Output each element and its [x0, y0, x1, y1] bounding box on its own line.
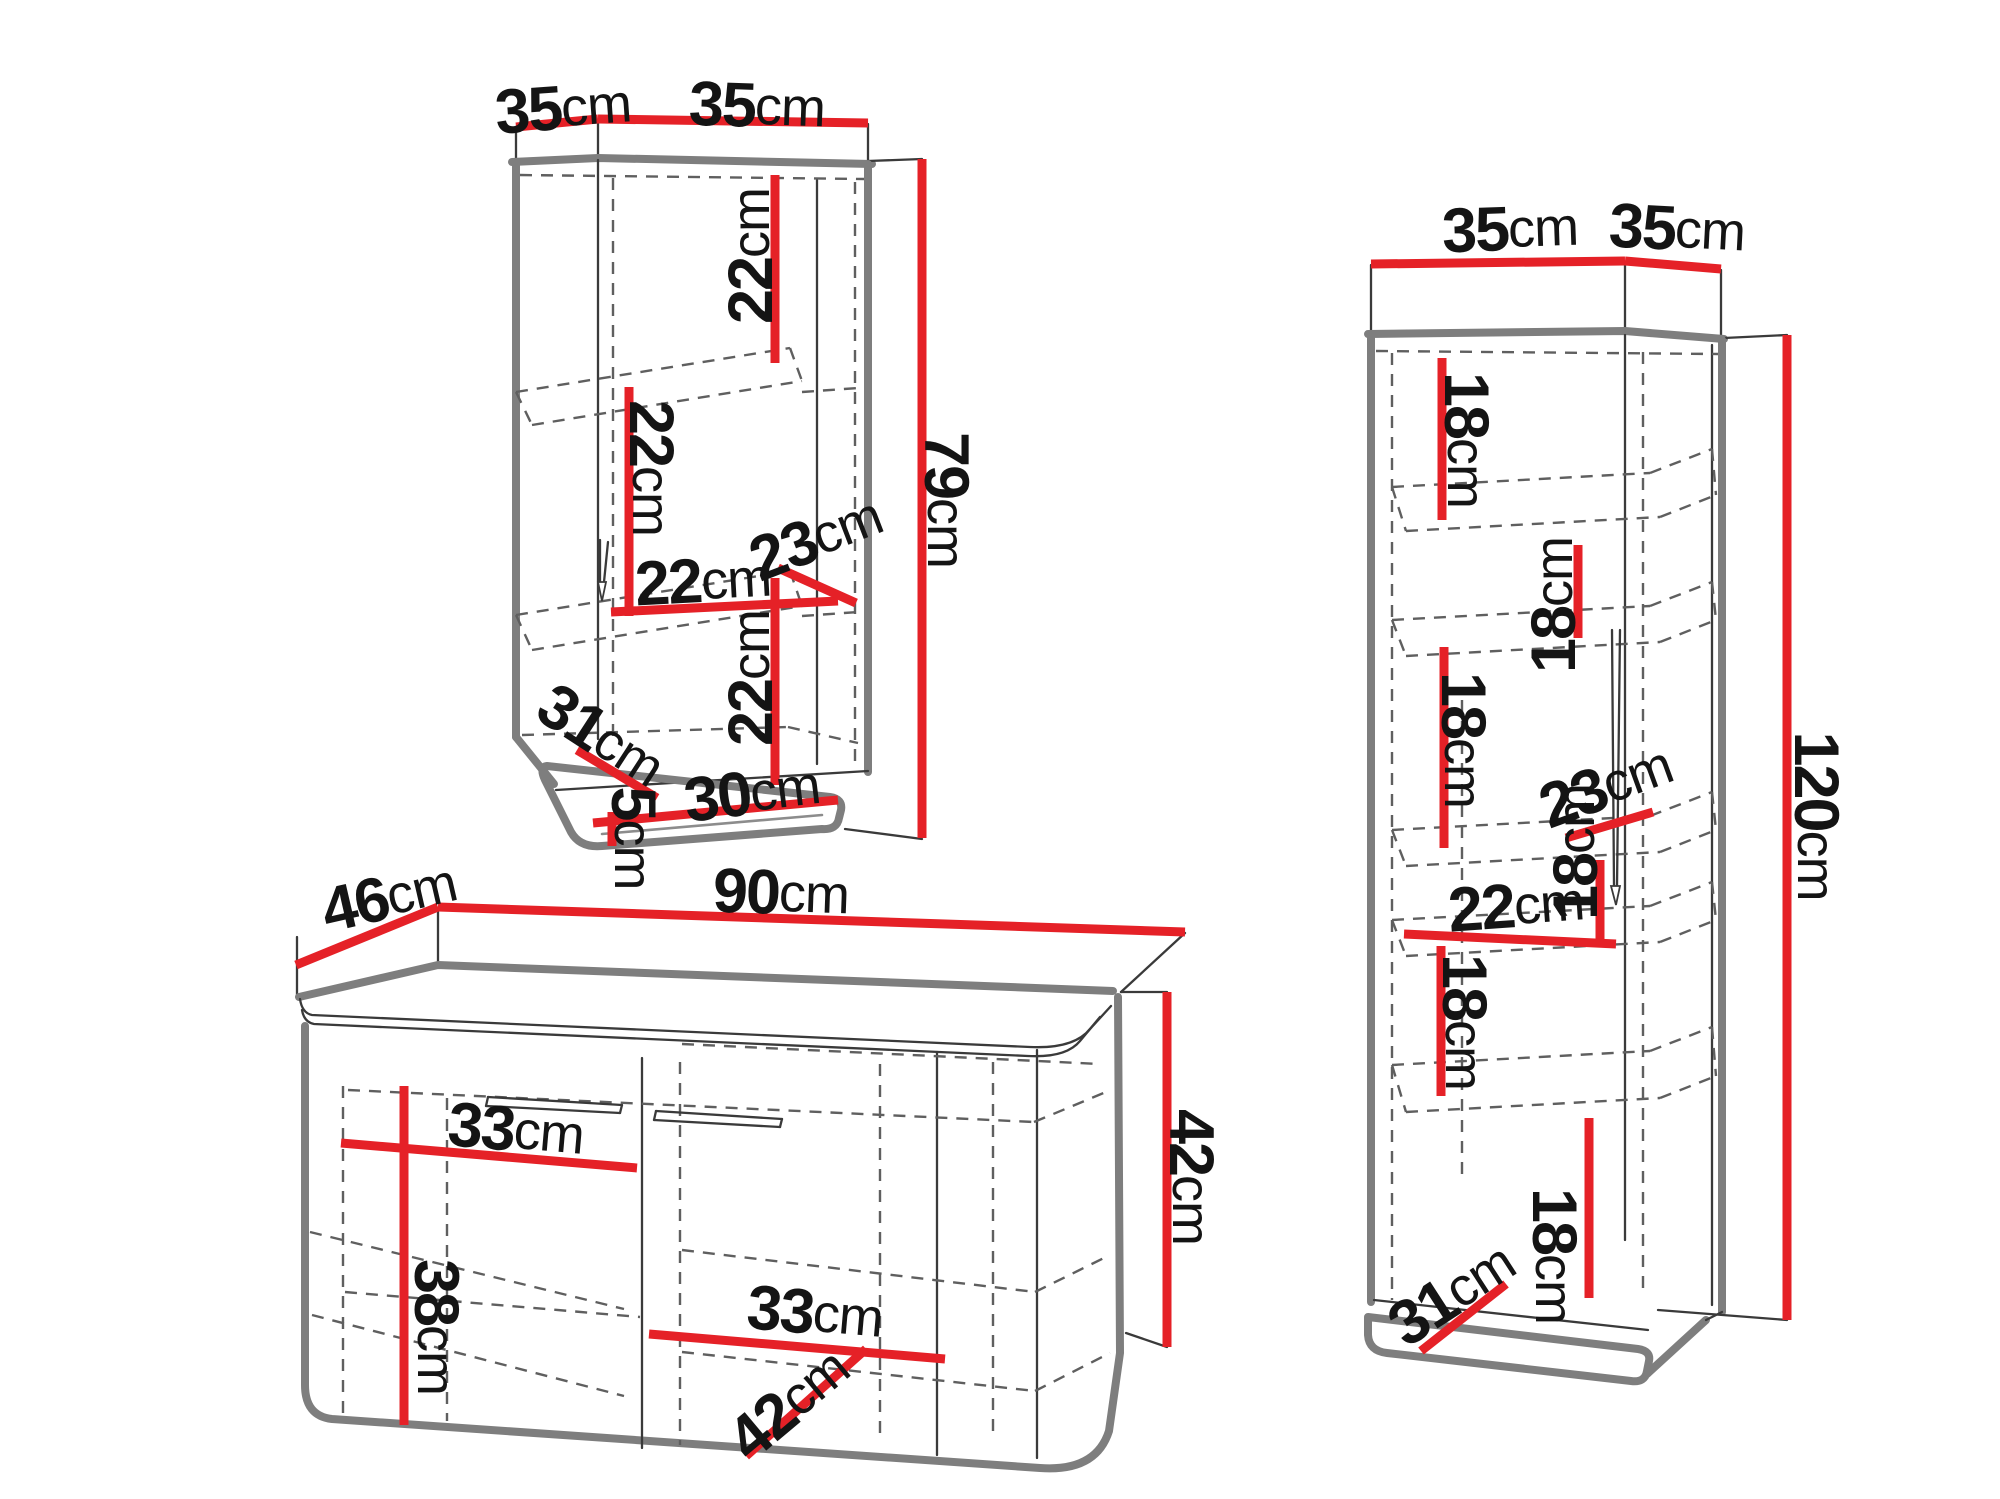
shelf-extension	[1660, 620, 1716, 642]
interior-bottom-front-line	[312, 1315, 624, 1396]
door-handle-right	[654, 1111, 782, 1127]
shelf-back-edge	[1392, 473, 1650, 487]
dim-tall-compartment-2: 18cm	[1519, 537, 1589, 673]
shelf-front-edge	[1406, 852, 1660, 866]
dim-wall-bottom-width: 30cm	[680, 750, 824, 836]
interior-top-line	[1376, 351, 1718, 354]
interior-top-line-return	[1034, 1092, 1106, 1122]
dim-tall-compartment-1: 18cm	[1431, 372, 1501, 508]
dim-sideboard-depth: 46cm	[315, 848, 463, 947]
shelf-end-edge	[1392, 1065, 1406, 1112]
dim-sideboard-left-height: 38cm	[401, 1259, 471, 1395]
dim-tall-bottom-diagonal: 31cm	[1376, 1228, 1528, 1361]
handle-line	[654, 1120, 780, 1127]
shelf-extension	[802, 388, 858, 392]
shelf-extension	[1660, 495, 1716, 517]
shelf-extension	[1650, 882, 1712, 906]
angled-corner-edge	[516, 737, 554, 784]
dim-sideboard-height: 42cm	[1156, 1109, 1226, 1245]
extension-line	[1126, 1333, 1167, 1347]
dim-tall-compartment-6: 18cm	[1519, 1188, 1589, 1324]
body-outline	[305, 997, 1120, 1468]
tall-cabinet-dimension-labels: 35cm 35cm 120cm 18cm 18cm 18cm 23cm 18cm…	[1376, 190, 1851, 1360]
dim-tall-top-width-left: 35cm	[1441, 192, 1579, 267]
shelf-extension	[1650, 449, 1712, 473]
right-shelf-dashed	[682, 1250, 1035, 1292]
sideboard-dimension-labels: 46cm 90cm 33cm 38cm 33cm 42cm 42cm	[315, 848, 1226, 1475]
dim-sideboard-width: 90cm	[712, 856, 850, 931]
shelf-front-edge	[1406, 1098, 1660, 1112]
extension-line	[868, 159, 922, 161]
diagram-canvas: 35cm 35cm 22cm 22cm 22cm 23cm 79cm 22cm …	[0, 0, 2000, 1499]
shelf-end-edge	[790, 348, 802, 381]
dim-tall-height: 120cm	[1781, 731, 1851, 900]
shelf-end-edge	[1392, 830, 1406, 866]
extension-line	[1724, 335, 1787, 338]
shelf-end-edge	[1392, 487, 1406, 531]
dim-sideboard-right-width: 33cm	[744, 1272, 886, 1354]
furniture-dimension-diagram: 35cm 35cm 22cm 22cm 22cm 23cm 79cm 22cm …	[0, 0, 2000, 1499]
dim-tall-compartment-3: 18cm	[1428, 672, 1498, 808]
extension-line	[845, 829, 922, 839]
shelf-extension	[1660, 1076, 1716, 1098]
left-shelf-dashed	[345, 1292, 640, 1317]
interior-bottom-line	[788, 727, 858, 743]
shelf-upper-dashed	[516, 348, 858, 425]
shelf-end-edge	[1392, 620, 1406, 656]
handle-line	[654, 1111, 656, 1120]
shelf-extension	[802, 612, 858, 616]
dim-tall-interior-width: 22cm	[1446, 866, 1587, 945]
dim-tall-compartment-5: 18cm	[1429, 954, 1499, 1090]
dim-wall-compartment-bottom: 22cm	[716, 610, 786, 746]
shelf-extension	[1650, 1027, 1712, 1051]
sideboard: 46cm 90cm 33cm 38cm 33cm 42cm 42cm	[296, 848, 1226, 1475]
plinth-side-edge	[1647, 1320, 1706, 1374]
interior-top-line	[520, 175, 864, 179]
handle-line	[620, 1105, 622, 1113]
tall-cabinet: 35cm 35cm 120cm 18cm 18cm 18cm 23cm 18cm…	[1368, 190, 1851, 1381]
backsplash-right-edge	[1121, 933, 1185, 992]
top-board-front-edge	[300, 999, 1111, 1047]
right-shelf-return	[1035, 1353, 1110, 1391]
dim-wall-top-width-right: 35cm	[688, 69, 826, 144]
door-edge-arrow	[1611, 886, 1620, 905]
shelf-extension	[1660, 920, 1716, 942]
handle-line	[780, 1119, 782, 1127]
dim-wall-bottom-thickness: 5cm	[598, 786, 668, 889]
top-back-edge	[299, 965, 1113, 997]
shelf-back-edge	[516, 348, 790, 392]
top-front-edge	[512, 158, 872, 164]
dim-wall-height: 79cm	[911, 432, 981, 568]
wall-cabinet: 35cm 35cm 22cm 22cm 22cm 23cm 79cm 22cm …	[493, 68, 981, 889]
shelf-extension	[1660, 830, 1716, 852]
door-edge-arrow	[598, 582, 606, 601]
dim-tall-top-width-right: 35cm	[1607, 190, 1747, 267]
top-front-edge	[1368, 331, 1724, 339]
shelf-back-edge	[1392, 1051, 1650, 1065]
dim-wall-top-width-left: 35cm	[493, 68, 634, 147]
shelf-extension	[1650, 582, 1712, 606]
dim-wall-compartment-top: 22cm	[716, 188, 786, 324]
right-shelf-return	[1035, 1255, 1110, 1292]
door-edge-detail	[604, 542, 608, 582]
dim-wall-compartment-middle: 22cm	[616, 400, 686, 536]
handle-line	[656, 1111, 782, 1119]
